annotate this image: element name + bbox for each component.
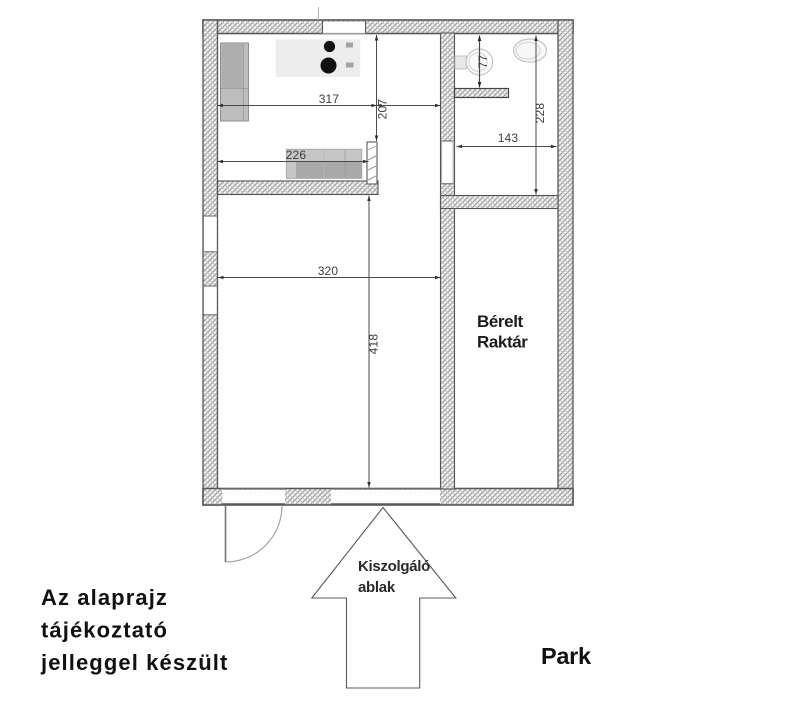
svg-text:ablak: ablak [358,579,396,596]
svg-text:77: 77 [476,55,490,69]
svg-text:207: 207 [376,99,390,120]
svg-text:Bérelt: Bérelt [477,312,524,331]
svg-text:tájékoztató: tájékoztató [41,618,168,643]
svg-text:Kiszolgáló: Kiszolgáló [358,558,430,575]
svg-text:Az alaprajz: Az alaprajz [41,585,168,610]
svg-text:320: 320 [318,264,339,278]
svg-text:418: 418 [367,334,381,355]
svg-text:Park: Park [541,643,592,669]
svg-text:143: 143 [498,131,519,145]
svg-text:228: 228 [533,103,547,124]
svg-text:jelleggel készült: jelleggel készült [40,650,228,675]
svg-text:317: 317 [319,92,340,106]
svg-text:Raktár: Raktár [477,333,528,352]
svg-text:226: 226 [286,148,307,162]
